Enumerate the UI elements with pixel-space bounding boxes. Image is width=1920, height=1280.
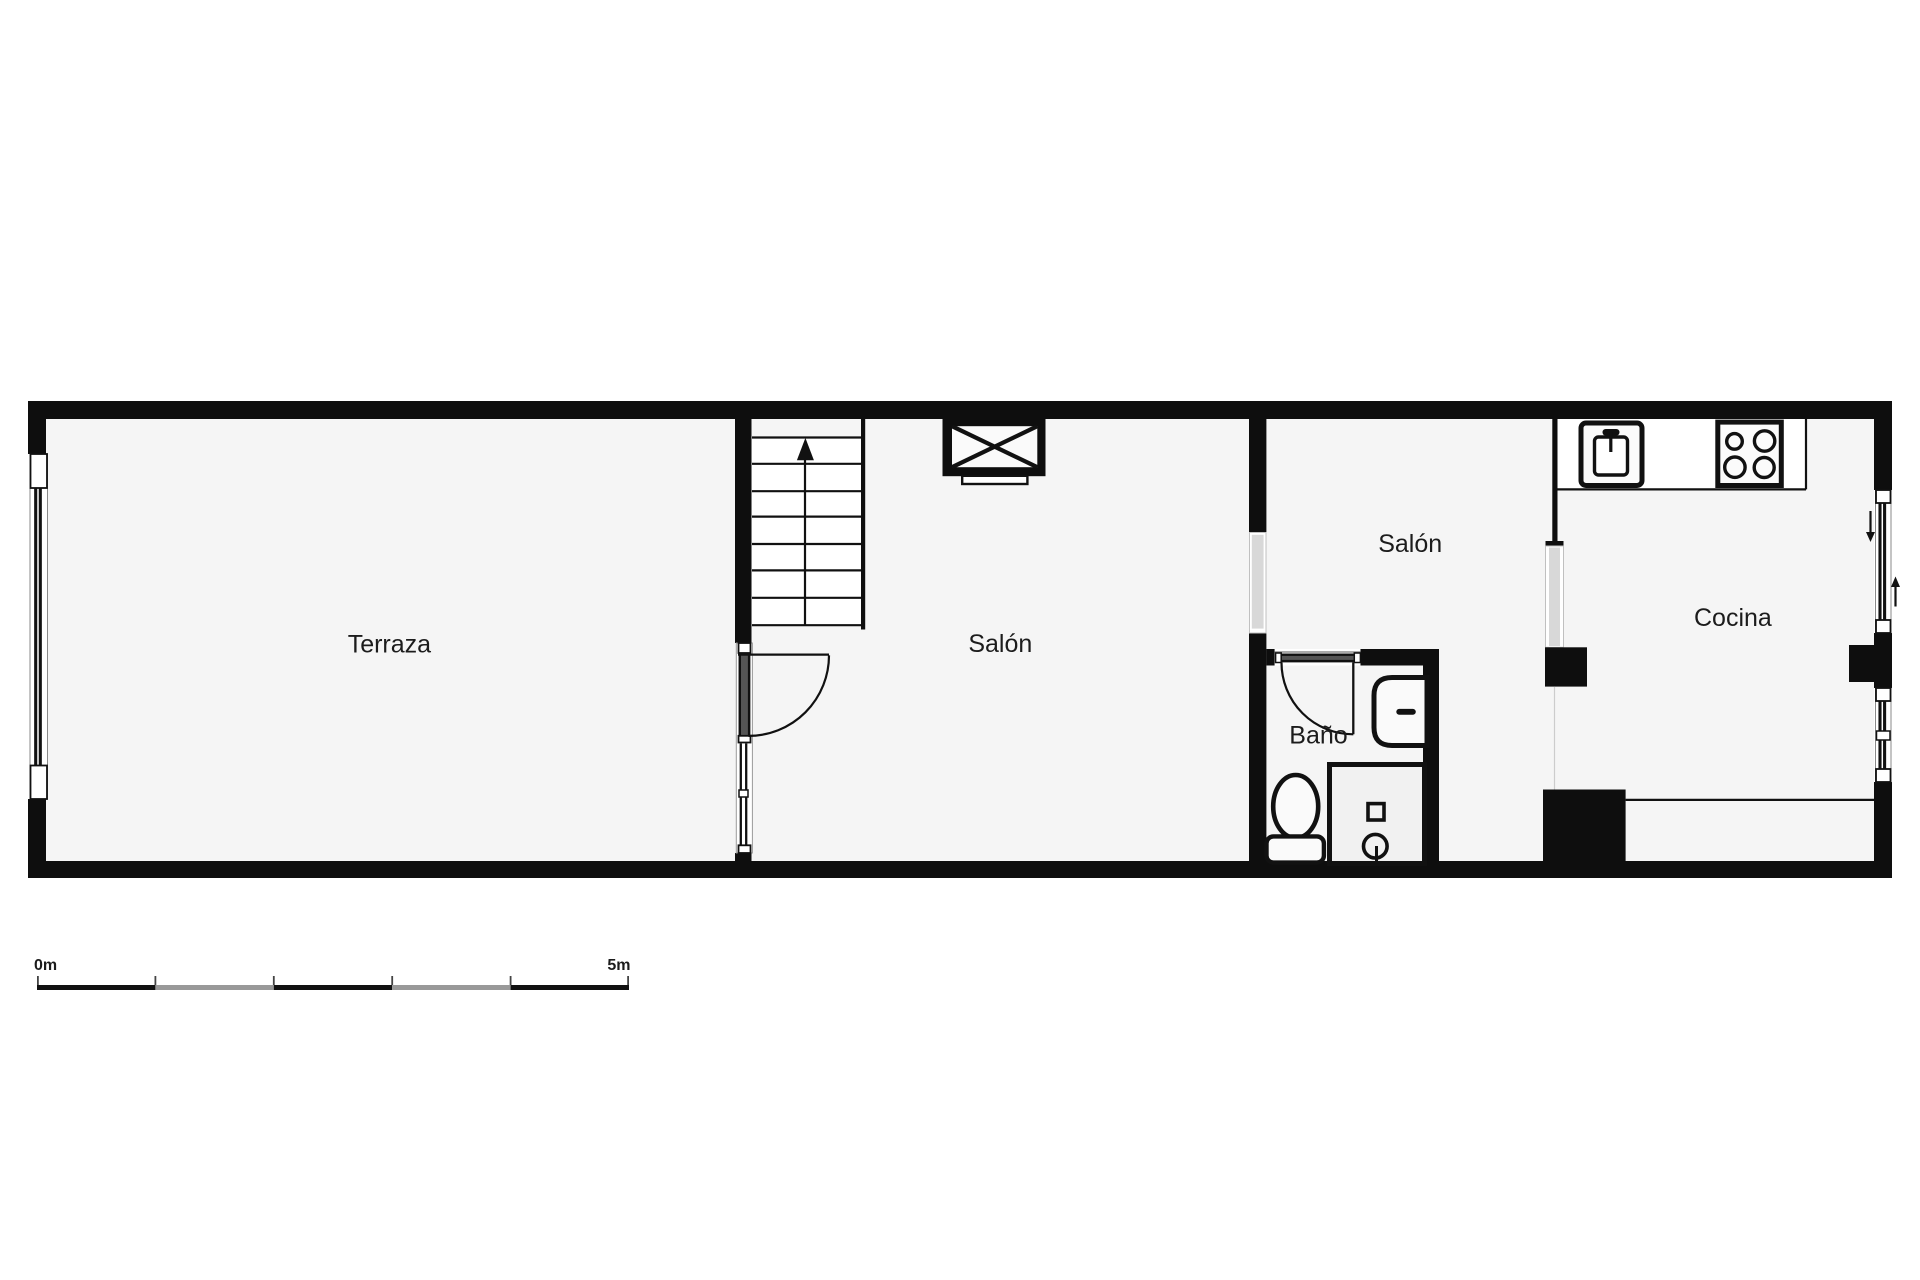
svg-text:Baño: Baño — [1289, 721, 1347, 749]
svg-text:Terraza: Terraza — [348, 631, 431, 659]
svg-text:0m: 0m — [34, 957, 57, 974]
svg-text:Cocina: Cocina — [1694, 604, 1772, 632]
svg-text:Salón: Salón — [1378, 530, 1442, 558]
svg-text:5m: 5m — [607, 957, 630, 974]
svg-text:Salón: Salón — [968, 630, 1032, 658]
